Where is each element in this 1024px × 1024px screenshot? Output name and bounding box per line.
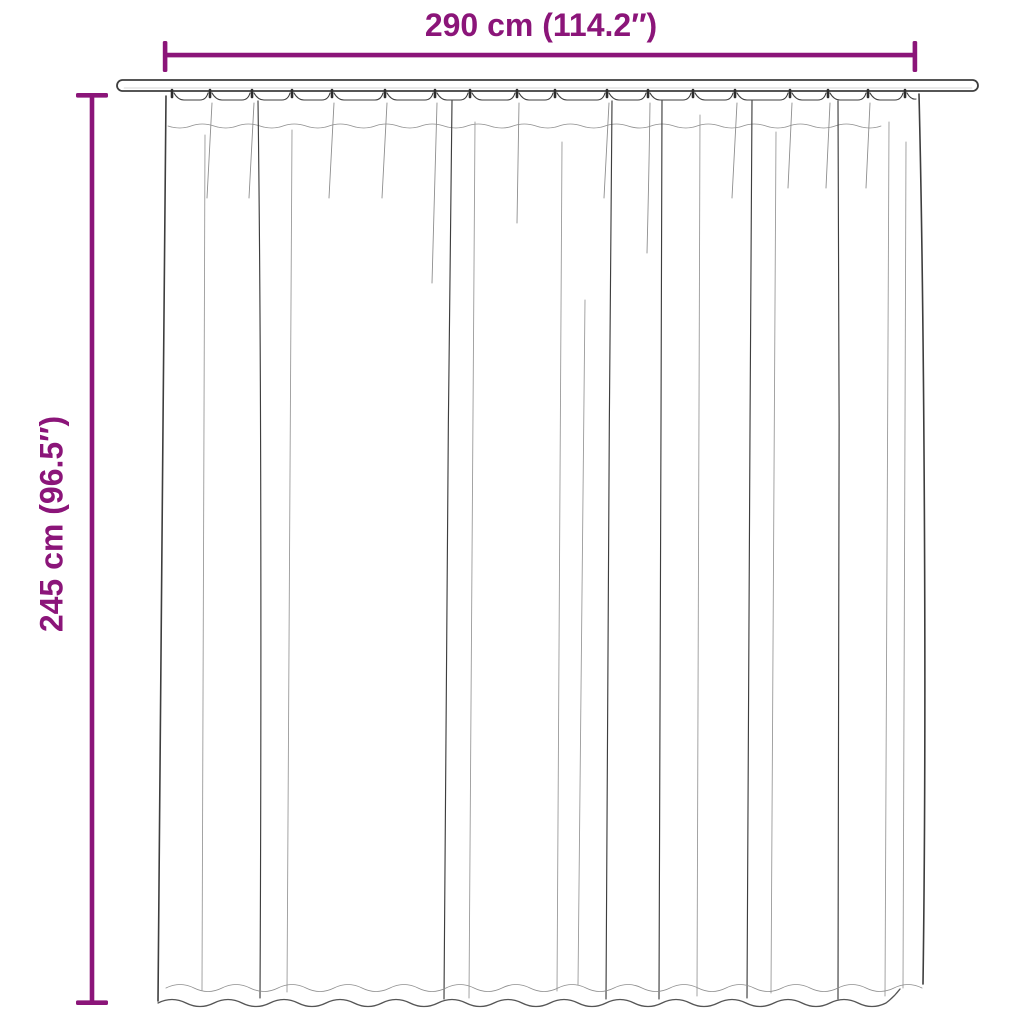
pleat-creases [207,103,870,283]
curtain-pleats [174,93,916,100]
curtain-hem-lower [158,989,900,1007]
curtain-header-fold [168,124,881,128]
curtain-folds-faint [202,115,906,998]
curtain-diagram-canvas [0,0,1024,1024]
width-dimension-cap-right [913,41,918,72]
height-dimension-label: 245 cm (96.5″) [34,416,69,632]
curtain-rod [117,80,978,91]
curtain-hem-upper [166,985,922,992]
width-dimension-line [163,41,917,72]
width-dimension-label: 290 cm (114.2″) [241,8,841,43]
curtain-illustration [117,80,978,1007]
width-dimension-bar [165,53,915,58]
curtain-left-edge [158,96,166,1001]
curtain-right-edge [919,94,925,984]
product-dimension-image: 290 cm (114.2″) 245 cm (96.5″) [0,0,1024,1024]
height-dimension-bar [90,95,95,1003]
curtain-folds-dark [258,101,839,999]
height-dimension-line [76,93,108,1005]
height-dimension-cap-bottom [76,1000,108,1005]
